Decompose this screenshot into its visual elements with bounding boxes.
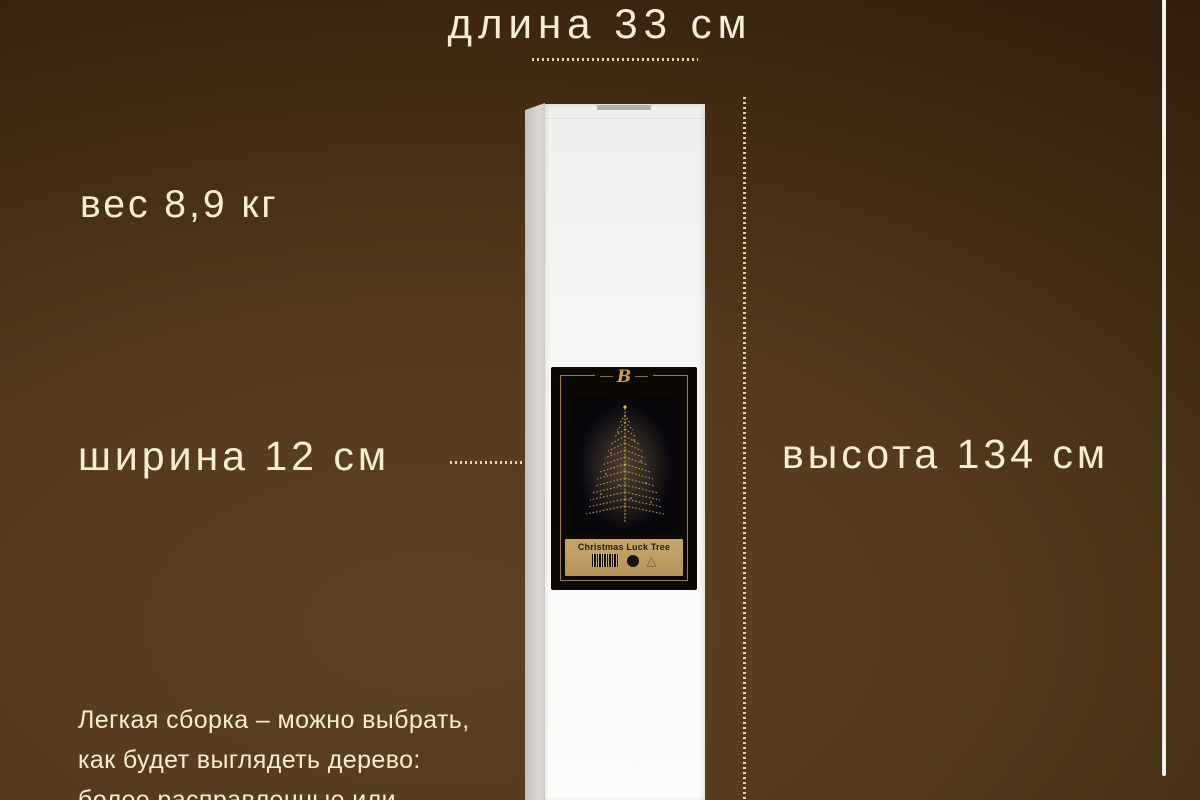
box-handle-slot <box>597 105 651 110</box>
description-text: Легкая сборка – можно выбрать, как будет… <box>78 700 548 800</box>
label-banner: Christmas Luck Tree △ <box>565 539 683 576</box>
brand-logo: B <box>561 364 687 387</box>
box-front-panel: B <box>545 104 705 800</box>
brand-initial: B <box>617 367 631 387</box>
width-label: ширина 12 см <box>78 433 390 480</box>
box-label: B <box>551 367 697 590</box>
brand-rule-right <box>635 376 648 377</box>
triangle-icon: △ <box>647 555 657 567</box>
box-fold-line <box>545 118 705 119</box>
height-dimension-line <box>743 97 746 800</box>
circle-icon <box>627 555 639 567</box>
label-banner-icons: △ <box>565 554 683 567</box>
product-box: B <box>525 103 705 800</box>
gold-tree-illustration <box>571 395 678 533</box>
label-gold-border: B <box>560 375 688 581</box>
product-infographic: длина 33 см вес 8,9 кг ширина 12 см высо… <box>0 0 1200 800</box>
weight-label: вес 8,9 кг <box>80 183 279 227</box>
length-label: длина 33 см <box>0 0 1200 48</box>
length-dimension-line <box>532 58 698 61</box>
tree-image <box>571 395 678 533</box>
product-name: Christmas Luck Tree <box>565 542 683 552</box>
height-label: высота 134 см <box>782 431 1109 478</box>
description-line: Легкая сборка – можно выбрать, <box>78 700 548 740</box>
barcode-icon <box>592 554 619 567</box>
description-line: как будет выглядеть дерево: <box>78 740 548 780</box>
description-line: более расправленные или <box>78 780 548 800</box>
brand-rule-left <box>600 376 613 377</box>
box-side-panel <box>525 103 545 800</box>
brand-logo-inner: B <box>595 367 653 387</box>
vertical-divider <box>1162 0 1166 776</box>
